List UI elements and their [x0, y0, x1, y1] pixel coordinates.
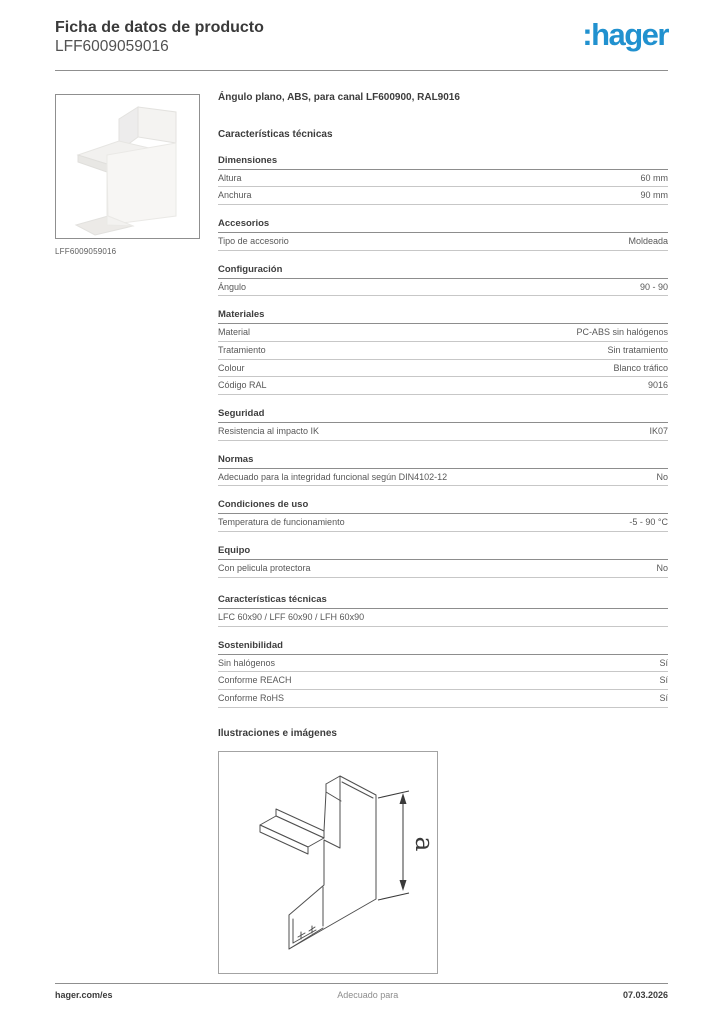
section: SostenibilidadSin halógenosSíConforme RE…: [218, 640, 668, 708]
table-row: Resistencia al impacto IKIK07: [218, 423, 668, 441]
section: SeguridadResistencia al impacto IKIK07: [218, 408, 668, 441]
table-row: Conforme REACHSí: [218, 672, 668, 690]
row-label: Adecuado para la integridad funcional se…: [218, 472, 457, 484]
table-row: Con pelicula protectoraNo: [218, 560, 668, 578]
section: DimensionesAltura60 mmAnchura90 mm: [218, 155, 668, 205]
section-title: Equipo: [218, 545, 668, 560]
table-row: Ángulo90 - 90: [218, 279, 668, 297]
product-code: LFF6009059016: [55, 37, 264, 56]
row-value: Blanco tráfico: [613, 363, 668, 375]
row-label: Colour: [218, 363, 255, 375]
section-title: Accesorios: [218, 218, 668, 233]
section-title: Configuración: [218, 264, 668, 279]
table-row: Temperatura de funcionamiento-5 - 90 °C: [218, 514, 668, 532]
section-title: Dimensiones: [218, 155, 668, 170]
technical-drawing: a: [219, 752, 437, 973]
row-value: Moldeada: [628, 236, 668, 248]
page-header: Ficha de datos de producto LFF6009059016…: [55, 18, 668, 71]
footer-date: 07.03.2026: [623, 990, 668, 1000]
section: MaterialesMaterialPC-ABS sin halógenosTr…: [218, 309, 668, 395]
row-value: Sí: [659, 675, 668, 687]
section: ConfiguraciónÁngulo90 - 90: [218, 264, 668, 297]
row-value: IK07: [649, 426, 668, 438]
row-value: Sí: [659, 693, 668, 705]
row-value: Sí: [659, 658, 668, 670]
section: Condiciones de usoTemperatura de funcion…: [218, 499, 668, 532]
row-value: 9016: [648, 380, 668, 392]
row-label: Tipo de accesorio: [218, 236, 299, 248]
row-label: Resistencia al impacto IK: [218, 426, 329, 438]
table-row: Anchura90 mm: [218, 187, 668, 205]
datasheet-page: Ficha de datos de producto LFF6009059016…: [0, 0, 724, 1024]
row-label: Sin halógenos: [218, 658, 285, 670]
image-column: LFF6009059016: [55, 92, 205, 974]
section-title: Seguridad: [218, 408, 668, 423]
row-value: 90 mm: [640, 190, 668, 202]
table-row: Adecuado para la integridad funcional se…: [218, 469, 668, 487]
row-value: 60 mm: [640, 173, 668, 185]
row-value: Sin tratamiento: [607, 345, 668, 357]
row-label: LFC 60x90 / LFF 60x90 / LFH 60x90: [218, 612, 374, 624]
row-label: Conforme RoHS: [218, 693, 294, 705]
row-value: PC-ABS sin halógenos: [576, 327, 668, 339]
row-value: 90 - 90: [640, 282, 668, 294]
extra-sections: Características técnicasLFC 60x90 / LFF …: [218, 594, 668, 708]
product-title: Ángulo plano, ABS, para canal LF600900, …: [218, 92, 668, 103]
table-row: Código RAL9016: [218, 377, 668, 395]
header-titles: Ficha de datos de producto LFF6009059016: [55, 18, 264, 57]
product-image: [56, 95, 199, 238]
section-title: Sostenibilidad: [218, 640, 668, 655]
table-row: Altura60 mm: [218, 170, 668, 188]
section: EquipoCon pelicula protectoraNo: [218, 545, 668, 578]
section-title: Características técnicas: [218, 594, 668, 609]
row-label: Temperatura de funcionamiento: [218, 517, 355, 529]
row-value: No: [656, 563, 668, 575]
section-title: Normas: [218, 454, 668, 469]
page-footer: hager.com/es Adecuado para 07.03.2026: [55, 983, 668, 1000]
table-row: Tipo de accesorioMoldeada: [218, 233, 668, 251]
hager-logo: :hager: [582, 19, 668, 50]
table-row: LFC 60x90 / LFF 60x90 / LFH 60x90: [218, 609, 668, 627]
row-label: Conforme REACH: [218, 675, 302, 687]
row-label: Material: [218, 327, 260, 339]
illustrations-heading: Ilustraciones e imágenes: [218, 728, 668, 739]
row-label: Tratamiento: [218, 345, 276, 357]
section-title: Condiciones de uso: [218, 499, 668, 514]
row-label: Anchura: [218, 190, 262, 202]
tech-heading: Características técnicas: [218, 129, 668, 140]
row-label: Código RAL: [218, 380, 277, 392]
section-title: Materiales: [218, 309, 668, 324]
row-label: Con pelicula protectora: [218, 563, 321, 575]
illustration-frame: a: [218, 751, 438, 974]
footer-center-text: Adecuado para: [337, 990, 398, 1000]
row-value: -5 - 90 °C: [629, 517, 668, 529]
row-value: No: [656, 472, 668, 484]
row-label: Ángulo: [218, 282, 256, 294]
row-label: Altura: [218, 173, 252, 185]
footer-link[interactable]: hager.com/es: [55, 990, 113, 1000]
page-title: Ficha de datos de producto: [55, 18, 264, 37]
table-row: Sin halógenosSí: [218, 655, 668, 673]
product-image-frame: [55, 94, 200, 239]
data-column: Ángulo plano, ABS, para canal LF600900, …: [218, 92, 668, 974]
dimension-label: a: [410, 836, 437, 851]
section: Características técnicasLFC 60x90 / LFF …: [218, 594, 668, 627]
table-row: MaterialPC-ABS sin halógenos: [218, 324, 668, 342]
table-row: Conforme RoHSSí: [218, 690, 668, 708]
table-row: TratamientoSin tratamiento: [218, 342, 668, 360]
table-row: ColourBlanco tráfico: [218, 360, 668, 378]
tech-sections: DimensionesAltura60 mmAnchura90 mmAcceso…: [218, 155, 668, 578]
main-area: LFF6009059016 Ángulo plano, ABS, para ca…: [55, 92, 668, 974]
image-caption: LFF6009059016: [55, 247, 205, 256]
section: NormasAdecuado para la integridad funcio…: [218, 454, 668, 487]
section: AccesoriosTipo de accesorioMoldeada: [218, 218, 668, 251]
